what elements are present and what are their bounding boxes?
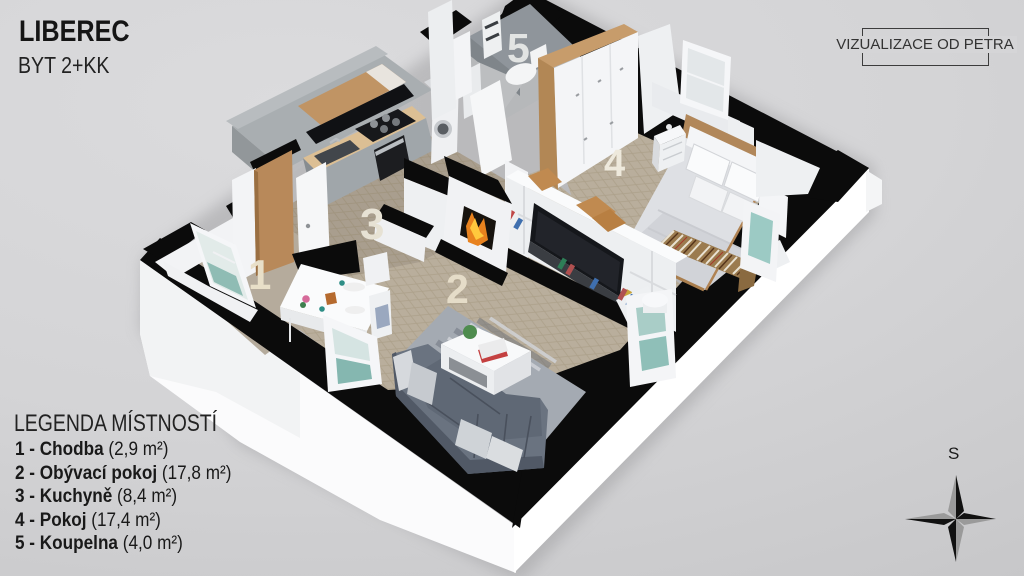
- svg-text:4: 4: [604, 143, 625, 185]
- svg-text:1: 1: [248, 251, 271, 298]
- svg-text:3: 3: [360, 200, 384, 249]
- svg-text:2: 2: [446, 266, 469, 312]
- svg-text:5: 5: [507, 25, 530, 71]
